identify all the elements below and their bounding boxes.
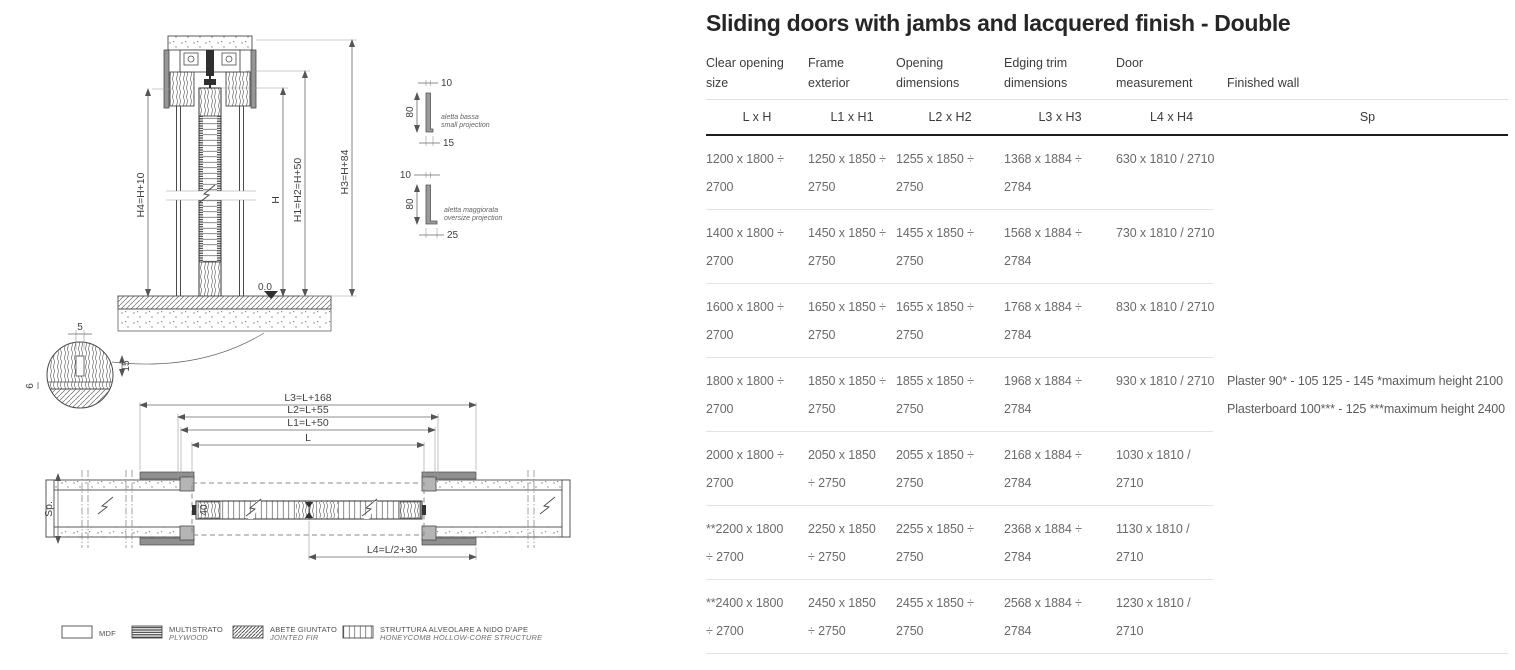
table-row-5: 2000 x 1800 ÷ 2700 2050 x 1850 ÷ 2750 20… [706, 432, 1508, 506]
table-cell: 1230 x 1810 / 2710 [1116, 580, 1227, 654]
subheader-l4xh4: L4 x H4 [1116, 110, 1227, 124]
table-row-3: 1600 x 1800 ÷ 2700 1650 x 1850 ÷ 2750 16… [706, 284, 1508, 358]
table-cell [1227, 580, 1508, 654]
table-row-7: **2400 x 1800 ÷ 2700 2450 x 1850 ÷ 2750 … [706, 580, 1508, 654]
profile-oversize-bottom-dim: 25 [447, 230, 459, 241]
materials-legend: MDF MULTISTRATO PLYWOOD ABETE GIUNTATO J… [62, 625, 543, 642]
table-cell: 630 x 1810 / 2710 [1116, 136, 1227, 210]
legend-swatch-plywood [132, 626, 162, 638]
table-cell: 930 x 1810 / 2710 [1116, 358, 1227, 432]
subheader-l3xh3: L3 x H3 [1004, 110, 1116, 124]
table-cell: 730 x 1810 / 2710 [1116, 210, 1227, 284]
table-cell: 1250 x 1850 ÷ 2750 [808, 136, 896, 210]
table-cell: 1600 x 1800 ÷ 2700 [706, 284, 808, 358]
table-cell: 2568 x 1884 ÷ 2784 [1004, 580, 1116, 654]
technical-drawing: 0.0 H4=H+10 H H1=H2=H+50 H3=H+84 [0, 0, 700, 670]
table-cell: 2055 x 1850 ÷ 2750 [896, 432, 1004, 506]
table-cell: 1768 x 1884 ÷ 2784 [1004, 284, 1116, 358]
detail-top-dim: 5 [77, 322, 83, 333]
plan-view: 40 Sp. L3=L+168 L2=L+55 L1=L+50 L [43, 392, 570, 560]
profile-oversize-height-dim: 80 [405, 198, 416, 210]
table-cell: 1030 x 1810 / 2710 [1116, 432, 1227, 506]
table-row-4: 1800 x 1800 ÷ 2700 1850 x 1850 ÷ 2750 18… [706, 358, 1508, 432]
detail-left-dim: 6 [25, 383, 36, 389]
profile-small-label-en: small projection [441, 122, 490, 129]
table-cell [1227, 136, 1508, 210]
catalog-page: 0.0 H4=H+10 H H1=H2=H+50 H3=H+84 [0, 0, 1515, 670]
profile-small-label-it: aletta bassa [441, 114, 479, 121]
col-header-opening-dimensions: Opening dimensions [896, 53, 1004, 93]
legend-label-mdf: MDF [99, 629, 116, 638]
col-header-clear-opening: Clear opening size [706, 53, 808, 93]
table-header-row: Clear opening size Frame exterior Openin… [706, 53, 1508, 93]
table-row-6: **2200 x 1800 ÷ 2700 2250 x 1850 ÷ 2750 … [706, 506, 1508, 580]
dim-sp: Sp. [43, 501, 55, 517]
detail-circle: 5 15 6 [25, 322, 264, 411]
legend-swatch-mdf [62, 626, 92, 638]
profile-oversize-top-dim: 10 [400, 170, 412, 181]
table-cell: 2250 x 1850 ÷ 2750 [808, 506, 896, 580]
table-cell: 1568 x 1884 ÷ 2784 [1004, 210, 1116, 284]
door-thickness-label: 40 [199, 504, 210, 516]
table-cell: 1655 x 1850 ÷ 2750 [896, 284, 1004, 358]
profile-small-height-dim: 80 [405, 106, 416, 118]
dim-h: H [270, 196, 282, 204]
table-cell: 1450 x 1850 ÷ 2750 [808, 210, 896, 284]
table-cell: 1200 x 1800 ÷ 2700 [706, 136, 808, 210]
table-cell [1227, 284, 1508, 358]
dim-l1: L1=L+50 [287, 417, 329, 429]
table-cell: 830 x 1810 / 2710 [1116, 284, 1227, 358]
profile-oversize-label-en: oversize projection [444, 215, 502, 222]
page-title: Sliding doors with jambs and lacquered f… [706, 10, 1508, 37]
col-header-edging-trim: Edging trim dimensions [1004, 53, 1116, 93]
table-cell [1227, 210, 1508, 284]
table-cell: 1400 x 1800 ÷ 2700 [706, 210, 808, 284]
legend-label-honeycomb-en: HONEYCOMB HOLLOW-CORE STRUCTURE [380, 633, 543, 642]
table-cell: 1368 x 1884 ÷ 2784 [1004, 136, 1116, 210]
finished-wall-note: Plaster 90* - 105 125 - 145 *maximum hei… [1227, 358, 1508, 432]
table-cell: 2255 x 1850 ÷ 2750 [896, 506, 1004, 580]
table-subheader-row: L x H L1 x H1 L2 x H2 L3 x H3 L4 x H4 Sp [706, 100, 1508, 136]
col-header-frame-exterior: Frame exterior [808, 53, 896, 93]
legend-swatch-honeycomb [343, 626, 373, 638]
subheader-l2xh2: L2 x H2 [896, 110, 1004, 124]
vertical-section: 0.0 H4=H+10 H H1=H2=H+50 H3=H+84 [118, 36, 357, 331]
legend-label-plywood-en: PLYWOOD [169, 633, 208, 642]
table-cell: 1850 x 1850 ÷ 2750 [808, 358, 896, 432]
dim-h3: H3=H+84 [339, 149, 351, 194]
col-header-finished-wall: Finished wall [1227, 73, 1508, 93]
dim-h4: H4=H+10 [135, 172, 147, 217]
table-cell: 2450 x 1850 ÷ 2750 [808, 580, 896, 654]
spec-panel: Sliding doors with jambs and lacquered f… [706, 0, 1508, 654]
subheader-lxh: L x H [706, 110, 808, 124]
table-row-2: 1400 x 1800 ÷ 2700 1450 x 1850 ÷ 2750 14… [706, 210, 1508, 284]
subheader-l1xh1: L1 x H1 [808, 110, 896, 124]
table-cell [1227, 506, 1508, 580]
table-cell: **2400 x 1800 ÷ 2700 [706, 580, 808, 654]
profile-oversize-projection: 10 80 25 aletta maggiorata oversize proj… [400, 170, 503, 241]
profile-small-top-dim: 10 [441, 78, 453, 89]
table-cell: 1130 x 1810 / 2710 [1116, 506, 1227, 580]
table-cell: **2200 x 1800 ÷ 2700 [706, 506, 808, 580]
table-cell: 1455 x 1850 ÷ 2750 [896, 210, 1004, 284]
table-cell: 1255 x 1850 ÷ 2750 [896, 136, 1004, 210]
profile-small-projection: 10 80 15 aletta bassa small projection [405, 78, 490, 149]
profile-oversize-label-it: aletta maggiorata [444, 207, 498, 214]
profile-small-bottom-dim: 15 [443, 138, 455, 149]
dim-l: L [305, 432, 311, 444]
table-cell: 1968 x 1884 ÷ 2784 [1004, 358, 1116, 432]
table-cell: 2368 x 1884 ÷ 2784 [1004, 506, 1116, 580]
table-cell [1227, 432, 1508, 506]
table-cell: 1855 x 1850 ÷ 2750 [896, 358, 1004, 432]
detail-leader-line [112, 333, 264, 364]
table-cell: 2050 x 1850 ÷ 2750 [808, 432, 896, 506]
dim-l3: L3=L+168 [284, 392, 331, 404]
table-row-1: 1200 x 1800 ÷ 2700 1250 x 1850 ÷ 2750 12… [706, 136, 1508, 210]
table-body: 1200 x 1800 ÷ 2700 1250 x 1850 ÷ 2750 12… [706, 136, 1508, 654]
legend-label-fir-en: JOINTED FIR [269, 633, 319, 642]
table-cell: 2455 x 1850 ÷ 2750 [896, 580, 1004, 654]
table-cell: 2000 x 1800 ÷ 2700 [706, 432, 808, 506]
table-cell: 1650 x 1850 ÷ 2750 [808, 284, 896, 358]
dim-l4: L4=L/2+30 [367, 544, 417, 556]
detail-right-dim: 15 [121, 360, 132, 372]
col-header-door-measurement: Door measurement [1116, 53, 1227, 93]
legend-swatch-jointed-fir [233, 626, 263, 638]
dim-h1: H1=H2=H+50 [292, 158, 304, 223]
drawing-svg: 0.0 H4=H+10 H H1=H2=H+50 H3=H+84 [0, 0, 700, 670]
dim-l2: L2=L+55 [287, 404, 329, 416]
subheader-sp: Sp [1227, 110, 1508, 124]
table-cell: 1800 x 1800 ÷ 2700 [706, 358, 808, 432]
table-cell: 2168 x 1884 ÷ 2784 [1004, 432, 1116, 506]
